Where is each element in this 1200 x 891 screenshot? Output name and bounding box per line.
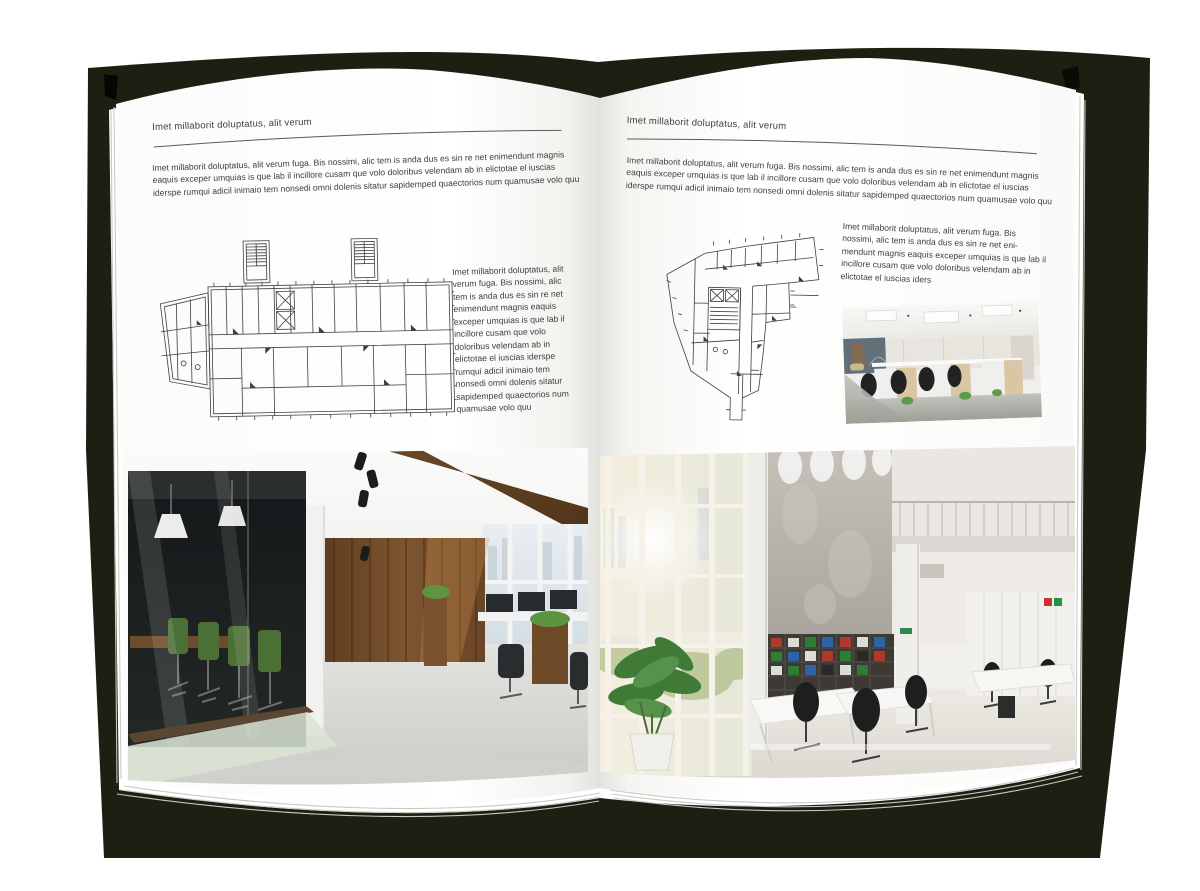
magazine-spread-mockup: Imet millaborit doluptatus, alit verum I… xyxy=(0,0,1200,891)
right-small-office-photo xyxy=(842,301,1042,424)
right-page-caption: Imet millaborit doluptatus, alit verum f… xyxy=(840,220,1048,291)
left-floor-plan-figure xyxy=(155,234,457,424)
right-floor-plan-figure xyxy=(644,222,838,426)
left-office-photo xyxy=(128,446,588,791)
right-office-photo xyxy=(600,444,1075,789)
left-page-caption: Imet millaborit doluptatus, alit verum f… xyxy=(452,262,575,415)
